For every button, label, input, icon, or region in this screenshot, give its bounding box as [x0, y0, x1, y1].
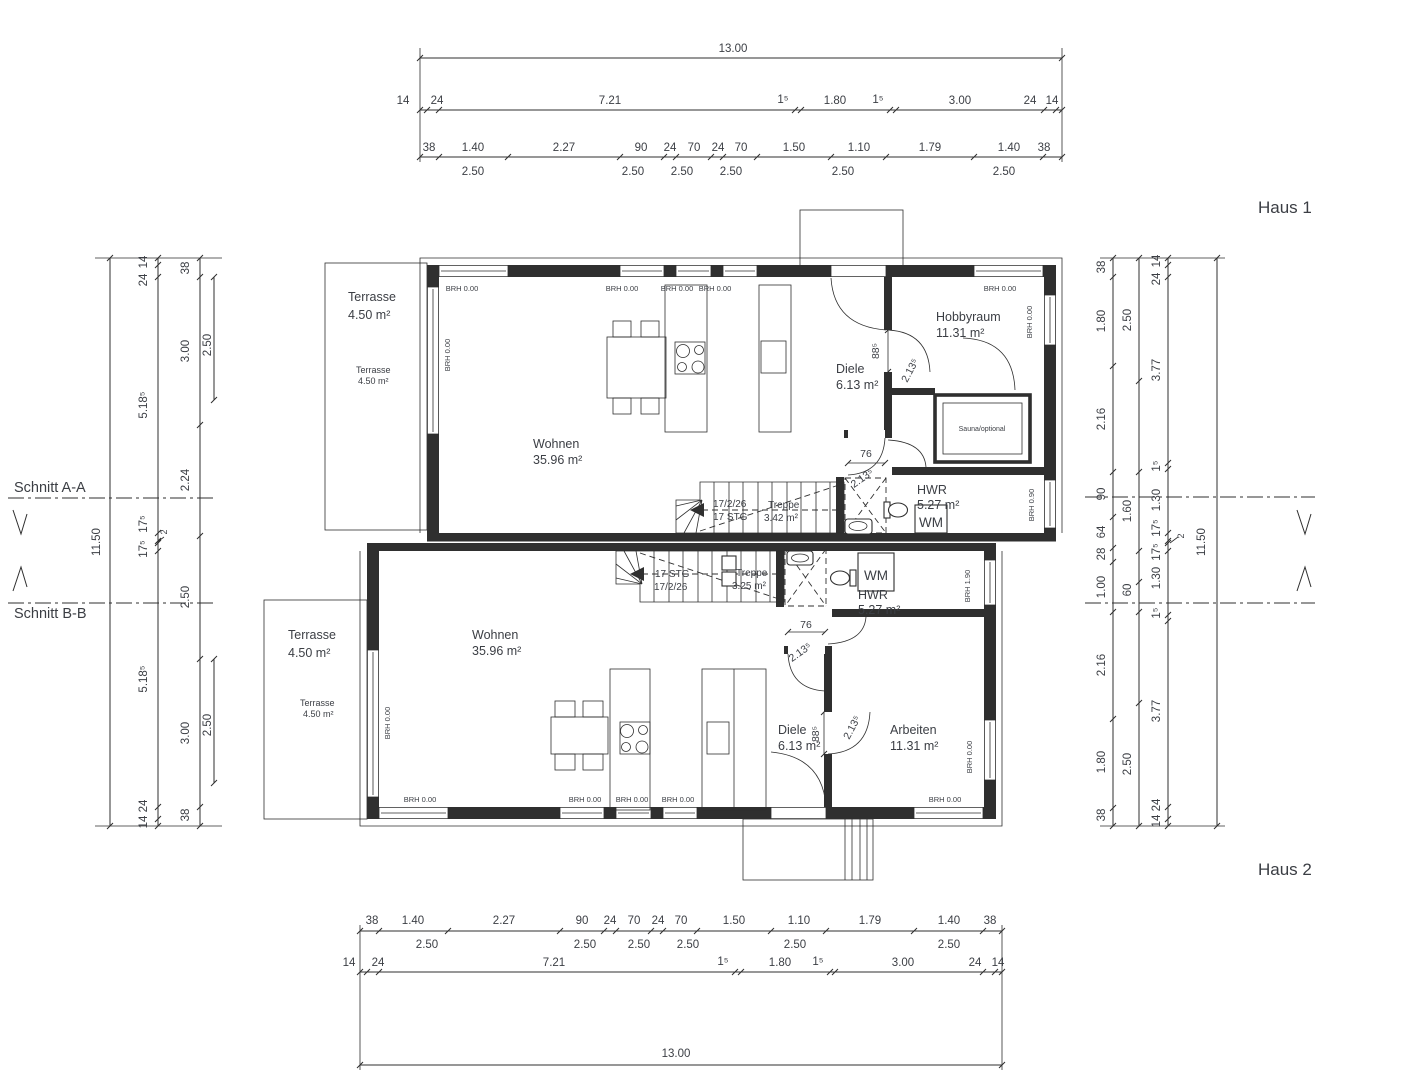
dim-label: 38	[1096, 261, 1108, 274]
brh-label: BRH 0.00	[965, 741, 974, 774]
room-label: 17 STG	[713, 512, 748, 523]
dim-label: 3.00	[180, 722, 192, 744]
door-dim-label: 88⁵	[810, 726, 822, 742]
dim-label: 1.40	[402, 915, 424, 927]
dim-label: 3.77	[1151, 700, 1163, 722]
dim-label: 38	[180, 262, 192, 275]
door-dim-lines	[788, 330, 888, 754]
dim-label: 90	[1096, 488, 1108, 501]
dim-label: 1.80	[824, 95, 846, 107]
washbasin-icon	[787, 551, 813, 565]
dim-label: 2.16	[1096, 654, 1108, 676]
dim-label: 11.50	[91, 528, 103, 556]
dim-label: 13.00	[719, 43, 748, 55]
dim-label: 2.50	[202, 334, 214, 356]
dim-label: 5.18⁵	[138, 665, 150, 692]
room-label: 35.96 m²	[472, 644, 521, 658]
door-dim-label: 88⁵	[870, 343, 882, 359]
dim-label: 38	[180, 809, 192, 822]
dim-label: 1⁵	[872, 94, 883, 106]
door-dim-label: 2.13⁵	[899, 357, 921, 385]
dim-label: 17⁵	[138, 515, 150, 533]
dim-label: 24	[431, 95, 444, 107]
section-label: Schnitt B-B	[14, 606, 87, 622]
dim-label: 1.50	[783, 142, 805, 154]
dim-label: 2.50	[622, 166, 644, 178]
dim-label: 14	[1151, 814, 1163, 827]
door-opening	[831, 265, 886, 277]
dim-label: 2.50	[180, 586, 192, 608]
dim-label: 38	[423, 142, 436, 154]
dim-label: 1.80	[1096, 310, 1108, 332]
dim-label: 17⁵	[1151, 519, 1163, 537]
dim-label: 24	[138, 799, 150, 812]
room-label: HWR	[917, 483, 947, 497]
dim-label: 1.80	[769, 957, 791, 969]
dim-label: 2.50	[1122, 753, 1134, 775]
dim-label: 1⁵	[717, 956, 728, 968]
room-label: Terrasse	[348, 290, 396, 304]
brh-label: BRH 0.00	[404, 795, 437, 804]
room-label: 4.50 m²	[348, 308, 390, 322]
room-label: Hobbyraum	[936, 310, 1001, 324]
dim-label: 14	[397, 95, 410, 107]
dim-label: 1.79	[919, 142, 941, 154]
brh-label: BRH 0.00	[616, 795, 649, 804]
dim-label: 70	[735, 142, 748, 154]
haus2-kitchen	[551, 669, 766, 810]
dim-label: 1.30	[1151, 489, 1163, 511]
dim-label: 2.27	[493, 915, 515, 927]
dim-label: 64	[1096, 525, 1108, 538]
section-arrow	[1297, 510, 1311, 534]
dim-label: 1⁵	[812, 956, 823, 968]
room-label: Wohnen	[472, 628, 518, 642]
house-title: Haus 2	[1258, 860, 1312, 879]
dim-label: 24	[138, 273, 150, 286]
dim-label: 2	[1176, 533, 1186, 538]
dim-label: 1.40	[998, 142, 1020, 154]
dim-label: 70	[688, 142, 701, 154]
dining-table	[551, 717, 608, 754]
section-arrow	[13, 567, 27, 591]
door-dim-label: 76	[860, 448, 872, 460]
room-label: 17/2/26	[654, 582, 688, 593]
brh-label: BRH 0.00	[606, 284, 639, 293]
dim-label: 2.50	[677, 939, 699, 951]
dim-label: 3.00	[180, 340, 192, 362]
dim-label: 14	[992, 957, 1005, 969]
dim-label: 24	[712, 142, 725, 154]
room-label: 11.31 m²	[936, 326, 984, 340]
door-dim-label: 2.13⁵	[849, 467, 876, 491]
room-label: Wohnen	[533, 437, 579, 451]
dim-label: 24	[604, 915, 617, 927]
stove-icon	[620, 722, 650, 754]
dim-label: 2.50	[784, 939, 806, 951]
floor-plan-page: 13.0014247.211⁵1.801⁵3.002414381.402.279…	[0, 0, 1402, 1080]
door-dim-label: 2.13⁵	[787, 641, 814, 665]
dim-label: 2.16	[1096, 408, 1108, 430]
dim-label: 17⁵	[138, 540, 150, 558]
dim-label: 5.18⁵	[138, 391, 150, 418]
room-label: 11.31 m²	[890, 739, 938, 753]
brh-label: BRH 0.00	[569, 795, 602, 804]
terraces	[264, 263, 427, 819]
room-label: WM	[864, 568, 888, 583]
dim-label: 2.50	[993, 166, 1015, 178]
dim-label: 24	[652, 915, 665, 927]
section-label: Schnitt A-A	[14, 480, 86, 496]
dim-label: 1⁵	[1151, 607, 1163, 618]
room-label: Diele	[836, 362, 865, 376]
dim-label: 7.21	[543, 957, 565, 969]
brh-label: BRH 0.00	[929, 795, 962, 804]
dim-label: 1.00	[1096, 576, 1108, 598]
haus1-stairs	[676, 482, 844, 533]
room-label: HWR	[858, 588, 888, 602]
dim-label: 3.00	[949, 95, 971, 107]
room-label: Sauna/optional	[959, 426, 1006, 433]
room-label: Treppe	[736, 568, 768, 579]
room-label: 17 STG	[655, 569, 690, 580]
dim-label: 60	[1122, 584, 1134, 597]
dim-label: 24	[372, 957, 385, 969]
brh-label: BRH 0.00	[383, 707, 392, 740]
dim-label: 38	[1096, 809, 1108, 822]
roof-outlines	[360, 258, 1062, 826]
dim-label: 38	[984, 915, 997, 927]
dim-label: 1.30	[1151, 567, 1163, 589]
room-label: Diele	[778, 723, 807, 737]
brh-label: BRH 0.00	[443, 339, 452, 372]
dim-label: 24	[969, 957, 982, 969]
room-label: Treppe	[768, 500, 800, 511]
dim-label: 1⁵	[777, 94, 788, 106]
brh-label: BRH 0.00	[984, 284, 1017, 293]
dim-label: 2	[159, 529, 169, 534]
room-label: 35.96 m²	[533, 453, 582, 467]
section-arrow	[13, 510, 27, 534]
door-dim-label: 2.13⁵	[841, 714, 863, 742]
door-opening	[771, 807, 826, 819]
dim-label: 1.60	[1122, 500, 1134, 522]
brh-label: BRH 0.00	[661, 284, 694, 293]
dining-table	[607, 337, 666, 398]
windows-and-doors	[367, 265, 1056, 819]
brh-label: BRH 0.00	[699, 284, 732, 293]
dim-label: 1.80	[1096, 751, 1108, 773]
stove-icon	[675, 342, 705, 374]
dim-label: 11.50	[1196, 528, 1208, 556]
door-dim-label: 76	[800, 619, 812, 631]
room-label: 3.42 m²	[764, 513, 799, 524]
room-label: 3.25 m²	[732, 581, 767, 592]
room-label: Arbeiten	[890, 723, 937, 737]
house-title: Haus 1	[1258, 198, 1312, 217]
dim-label: 24	[1024, 95, 1037, 107]
section-arrow	[1297, 567, 1311, 591]
dim-label: 38	[366, 915, 379, 927]
room-label: 17/2/26	[713, 499, 747, 510]
dim-label: 1.10	[788, 915, 810, 927]
dim-label: 2.50	[720, 166, 742, 178]
dim-label: 2.50	[416, 939, 438, 951]
dim-label: 90	[635, 142, 648, 154]
dim-label: 14	[1151, 254, 1163, 267]
brh-label: BRH 0.90	[1027, 489, 1036, 522]
dim-label: 2.50	[1122, 309, 1134, 331]
dim-label: 70	[628, 915, 641, 927]
room-label: Terrasse	[288, 628, 336, 642]
room-label: Terrasse	[356, 365, 391, 375]
dim-label: 2.50	[628, 939, 650, 951]
dim-label: 14	[138, 815, 150, 828]
room-label: 4.50 m²	[303, 709, 334, 719]
dim-label: 3.00	[892, 957, 914, 969]
dim-label: 2.50	[462, 166, 484, 178]
dim-label: 1.40	[938, 915, 960, 927]
toilet-icon	[850, 570, 856, 586]
dim-label: 7.21	[599, 95, 621, 107]
brh-label: BRH 0.00	[446, 284, 479, 293]
floor-plan-drawing: 13.0014247.211⁵1.801⁵3.002414381.402.279…	[0, 0, 1402, 1080]
room-label: Terrasse	[300, 698, 335, 708]
dim-label: 14	[138, 255, 150, 268]
dim-label: 1.79	[859, 915, 881, 927]
brh-label: BRH 0.00	[662, 795, 695, 804]
dim-label: 2.50	[832, 166, 854, 178]
room-label: 4.50 m²	[288, 646, 330, 660]
dim-label: 70	[675, 915, 688, 927]
brh-label: BRH 0.00	[1025, 306, 1034, 339]
dim-label: 28	[1096, 548, 1108, 561]
dim-label: 2.24	[180, 468, 192, 491]
dim-label: 2.50	[574, 939, 596, 951]
dim-label: 2.50	[938, 939, 960, 951]
room-label: 6.13 m²	[836, 378, 878, 392]
dim-label: 38	[1038, 142, 1051, 154]
dim-label: 2.50	[671, 166, 693, 178]
dim-label: 13.00	[662, 1048, 691, 1060]
dim-label: 2.50	[202, 714, 214, 736]
dim-label: 24	[1151, 798, 1163, 811]
dim-label: 1.10	[848, 142, 870, 154]
dim-label: 24	[1151, 272, 1163, 285]
dim-label: 1.50	[723, 915, 745, 927]
dim-label: 14	[343, 957, 356, 969]
haus1-kitchen	[607, 285, 791, 432]
brh-label: BRH 1.90	[963, 570, 972, 603]
text-labels: 13.0014247.211⁵1.801⁵3.002414381.402.279…	[14, 43, 1312, 1060]
dim-label: 90	[576, 915, 589, 927]
dim-label: 2.27	[553, 142, 575, 154]
dim-label: 3.77	[1151, 359, 1163, 381]
room-label: WM	[919, 515, 943, 530]
dim-label: 14	[1046, 95, 1059, 107]
room-label: 4.50 m²	[358, 376, 389, 386]
dim-label: 1⁵	[1151, 460, 1163, 471]
dim-label: 1.40	[462, 142, 484, 154]
dim-label: 17⁵	[1151, 543, 1163, 561]
room-label: 5.27 m²	[858, 603, 900, 617]
dim-label: 24	[664, 142, 677, 154]
room-label: 5.27 m²	[917, 498, 959, 512]
